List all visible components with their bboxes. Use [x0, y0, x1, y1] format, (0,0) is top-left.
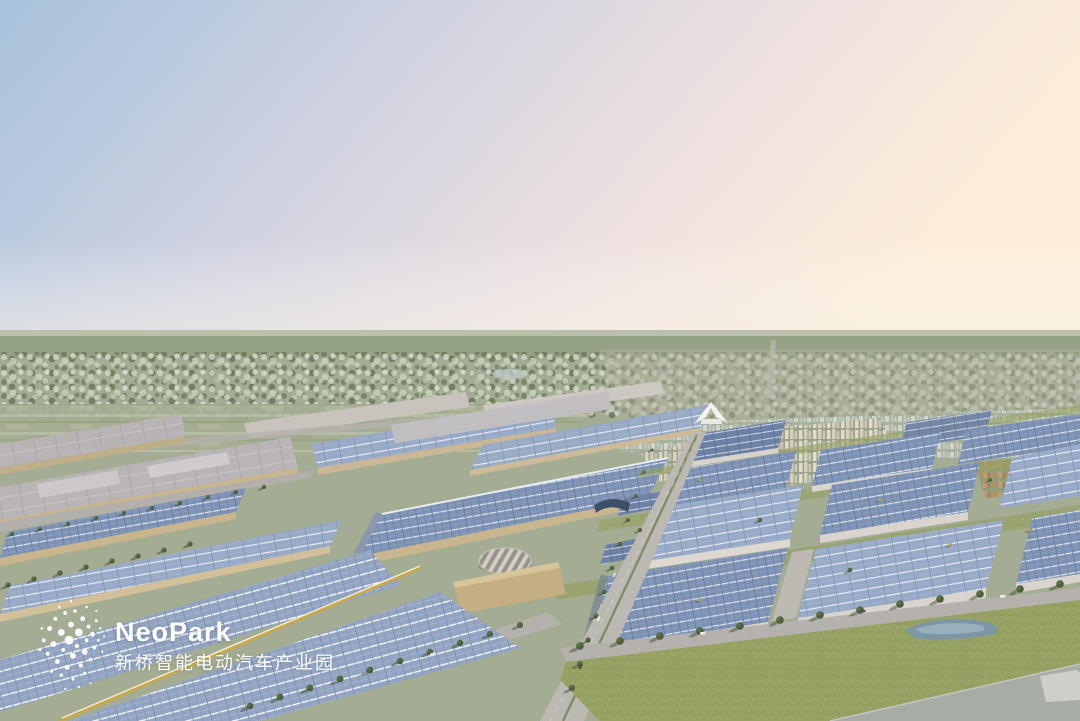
brand-name: NeoPark [115, 617, 335, 647]
dot-cluster-logo [34, 598, 108, 694]
distant-pond [492, 369, 528, 379]
sky [0, 0, 1080, 341]
brand-subtitle: 新桥智能电动汽车产业园 [115, 650, 335, 676]
watermark: NeoPark 新桥智能电动汽车产业园 [34, 598, 335, 694]
